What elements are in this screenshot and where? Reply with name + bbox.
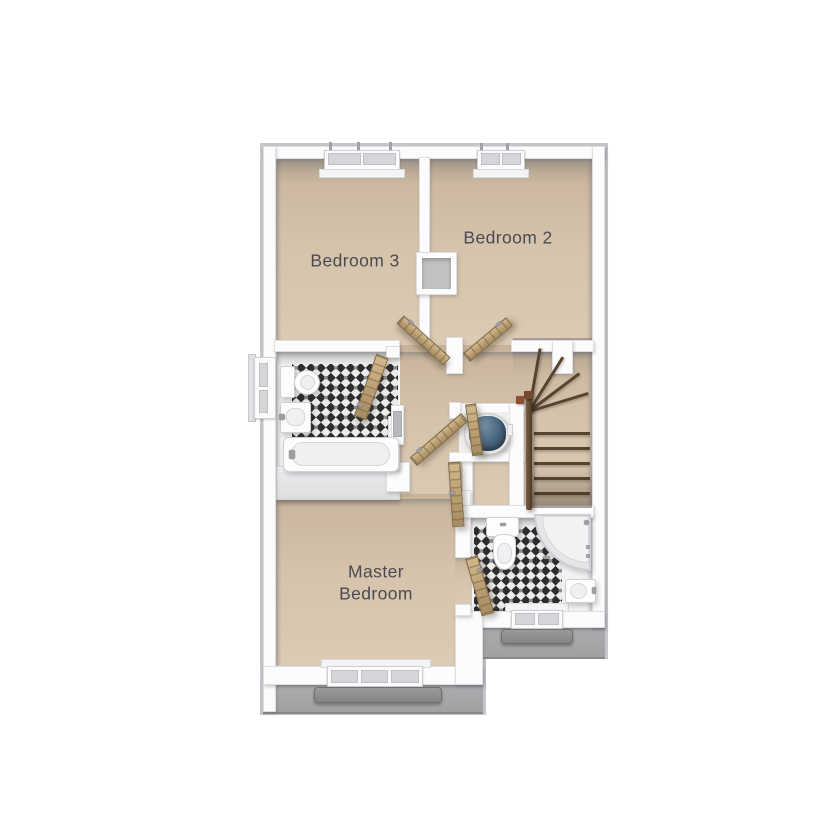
window-master-sill-outer [314, 687, 442, 703]
floorplan-canvas: Bedroom 3 Bedroom 2 Master Bedroom [0, 0, 840, 840]
washbasin-bowl-bathroom [286, 408, 305, 426]
window-master-pane [331, 670, 358, 683]
stair-handrail [526, 398, 532, 510]
door-handle [449, 491, 455, 494]
tap-bathtub [289, 450, 295, 459]
stair-tread [534, 462, 590, 465]
chimney-nook-recess [422, 258, 451, 289]
towel-hook [586, 545, 590, 549]
stair-tread [534, 447, 590, 450]
toilet-seat-bathroom [300, 375, 315, 390]
door-handle [357, 402, 364, 407]
stairwell-depth-shade [526, 466, 592, 508]
toilet-flush-button [500, 523, 506, 526]
room-label-bedroom2: Bedroom 2 [463, 228, 552, 249]
cylinder-pipe [507, 424, 513, 436]
window-master-pane [391, 670, 419, 683]
towel-hook [586, 554, 590, 558]
window-ensuite-pane [515, 613, 535, 625]
window-bedroom2-sill [473, 169, 529, 178]
washbasin-bowl-ensuite [570, 583, 587, 599]
room-label-bedroom3: Bedroom 3 [310, 251, 399, 272]
wall-right [592, 146, 605, 628]
window-hinge-mark [329, 142, 332, 150]
master-door-jamb-left-panel [393, 411, 402, 437]
toilet-cistern-bathroom [280, 366, 295, 398]
window-hinge-mark [506, 143, 509, 150]
window-hinge-mark [480, 143, 483, 150]
master-wall-shade [277, 499, 460, 508]
wall-stair-west [509, 403, 524, 513]
room-label-master-line1: Master [348, 562, 404, 583]
window-bedroom2-pane [481, 153, 500, 165]
window-bedroom3-sill [319, 169, 405, 178]
shower-head [584, 520, 589, 525]
window-ensuite-sill-outer [501, 629, 573, 644]
window-bathroom-pane [259, 363, 268, 387]
tap-basin-ensuite [592, 587, 596, 594]
window-bedroom3-pane [328, 153, 361, 165]
toilet-seat-ensuite [497, 543, 512, 564]
window-bedroom2-pane [502, 153, 521, 165]
newel-post [516, 396, 524, 404]
newel-post [524, 391, 533, 399]
wall-ensuite-west-lower [455, 604, 471, 616]
wall-bedroom3-south [274, 340, 400, 352]
window-master-pane [361, 670, 388, 683]
wall-left [263, 146, 276, 712]
window-bedroom3-pane [363, 153, 396, 165]
window-hinge-mark [389, 142, 392, 150]
tap-basin-bathroom [279, 414, 285, 420]
window-ensuite-pane [538, 613, 559, 625]
door-handle [477, 567, 484, 572]
shower-door-handle [543, 556, 550, 559]
wall-bathroom-door-stub [386, 346, 400, 358]
room-label-master-line2: Bedroom [339, 584, 413, 605]
stair-tread [534, 432, 590, 435]
wall-bedroom-divider [419, 157, 430, 343]
wall-top [263, 146, 605, 159]
bathtub-basin [291, 442, 390, 466]
window-hinge-mark [357, 142, 360, 150]
wall-step-corner [455, 611, 483, 685]
window-bathroom-pane [259, 390, 268, 413]
